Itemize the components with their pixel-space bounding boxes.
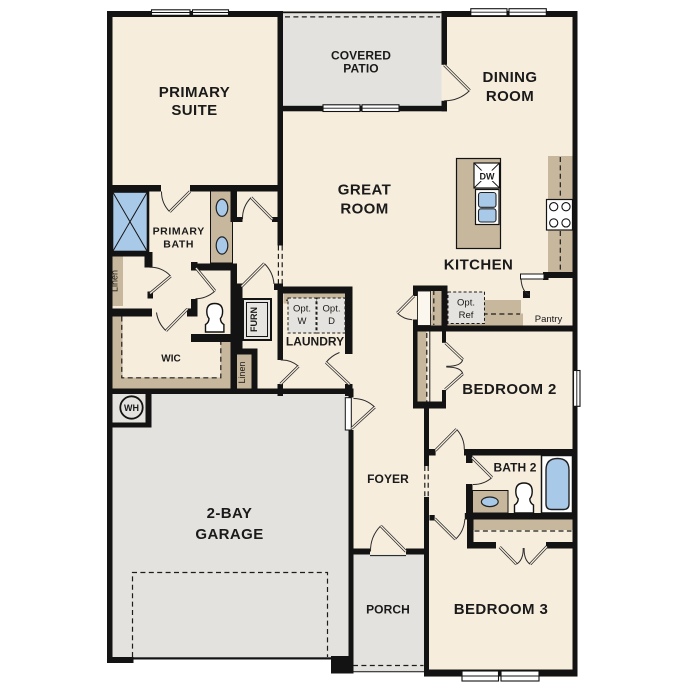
svg-text:Opt.: Opt. xyxy=(293,304,311,315)
svg-text:Opt.: Opt. xyxy=(457,298,475,309)
svg-text:GARAGE: GARAGE xyxy=(195,526,263,543)
svg-text:DINING: DINING xyxy=(483,69,538,86)
svg-text:BATH 2: BATH 2 xyxy=(493,460,536,474)
svg-text:ROOM: ROOM xyxy=(340,201,388,218)
svg-text:Ref: Ref xyxy=(459,310,474,321)
svg-text:ROOM: ROOM xyxy=(486,88,534,105)
svg-text:W: W xyxy=(298,316,307,327)
svg-text:SUITE: SUITE xyxy=(171,102,217,119)
svg-text:D: D xyxy=(328,316,335,327)
svg-text:Linen: Linen xyxy=(110,270,120,292)
svg-text:Opt.: Opt. xyxy=(323,304,341,315)
svg-text:PATIO: PATIO xyxy=(343,61,378,75)
svg-text:WH: WH xyxy=(124,403,139,413)
svg-text:GREAT: GREAT xyxy=(338,182,391,199)
svg-text:LAUNDRY: LAUNDRY xyxy=(286,335,344,349)
svg-text:Linen: Linen xyxy=(237,361,247,383)
svg-text:Pantry: Pantry xyxy=(535,314,563,325)
svg-text:DW: DW xyxy=(480,172,495,182)
svg-text:BATH: BATH xyxy=(163,239,194,251)
svg-text:WIC: WIC xyxy=(161,354,180,365)
svg-text:BEDROOM 2: BEDROOM 2 xyxy=(462,381,556,398)
svg-text:BEDROOM 3: BEDROOM 3 xyxy=(454,601,548,618)
svg-text:COVERED: COVERED xyxy=(331,48,391,62)
svg-text:FURN: FURN xyxy=(249,307,259,332)
svg-text:2-BAY: 2-BAY xyxy=(207,505,253,522)
svg-text:KITCHEN: KITCHEN xyxy=(444,257,513,274)
svg-text:PRIMARY: PRIMARY xyxy=(159,84,230,101)
svg-text:FOYER: FOYER xyxy=(367,472,409,486)
svg-text:PORCH: PORCH xyxy=(366,603,410,617)
svg-text:PRIMARY: PRIMARY xyxy=(153,226,205,238)
